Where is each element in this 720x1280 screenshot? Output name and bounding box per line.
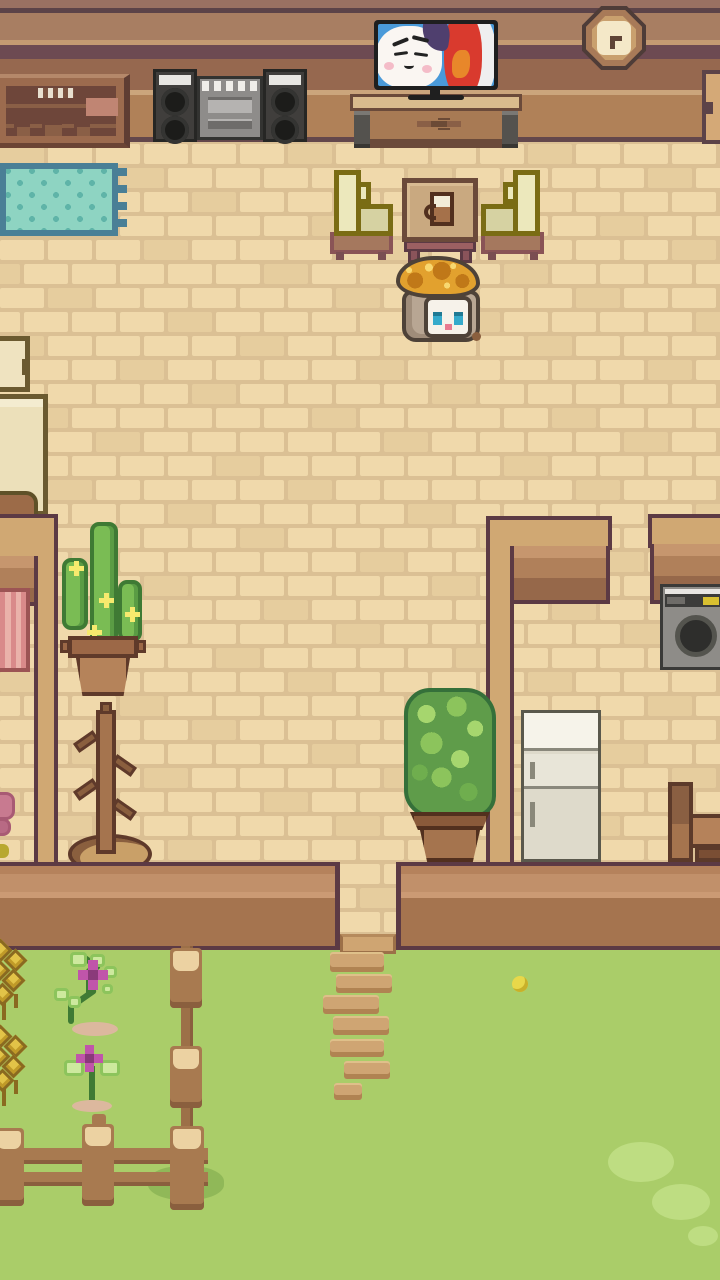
floor-brick <box>288 576 332 596</box>
floor-brick <box>336 336 380 356</box>
floor-brick <box>0 240 44 260</box>
floor-brick <box>72 360 116 380</box>
floor-brick <box>360 648 404 668</box>
floor-brick <box>192 336 236 356</box>
floor-brick <box>624 144 668 164</box>
vine-leaf <box>104 966 117 978</box>
floor-brick <box>192 816 236 836</box>
floor-brick <box>672 144 716 164</box>
floor-brick <box>216 504 260 524</box>
cat-eye <box>433 312 442 325</box>
floor-brick <box>600 648 644 668</box>
floor-brick <box>192 432 236 452</box>
plant-pot-rim <box>410 812 490 830</box>
floor-brick <box>168 408 212 428</box>
floor-brick <box>336 624 380 644</box>
floor-brick <box>336 912 380 932</box>
floor-brick <box>672 720 716 740</box>
tv-stand-leg <box>502 111 518 148</box>
floor-brick <box>504 360 548 380</box>
cat-nose <box>445 324 452 330</box>
floor-brick <box>672 672 716 692</box>
cactus-bloom <box>130 612 135 617</box>
floor-brick <box>384 432 428 452</box>
speaker-cone-icon <box>271 116 299 144</box>
chair-foot <box>336 252 344 260</box>
masonry-stove[interactable] <box>0 336 52 520</box>
magenta-bloom <box>85 1054 94 1063</box>
floor-brick <box>216 216 260 236</box>
floor-brick <box>216 312 260 332</box>
mug <box>430 192 454 226</box>
floor-brick <box>576 240 620 260</box>
dirt-patch <box>72 1022 118 1036</box>
vine-flower <box>46 950 130 1042</box>
floor-brick <box>648 456 692 476</box>
floor-brick <box>216 840 260 860</box>
floor-brick <box>696 456 720 476</box>
floor-brick <box>216 792 260 812</box>
plant-leaves <box>404 688 496 818</box>
floor-brick <box>312 312 356 332</box>
floor-brick <box>336 768 380 788</box>
cassette-window <box>208 97 252 113</box>
freezer-door <box>524 754 598 789</box>
floor-brick <box>336 576 380 596</box>
dirt-patch <box>72 1100 112 1112</box>
floor-brick <box>240 672 284 692</box>
wall-clock[interactable] <box>582 6 646 70</box>
floor-brick <box>648 696 692 716</box>
divider-wall-mid-top <box>486 516 612 550</box>
floor-brick <box>624 288 668 308</box>
floor-brick <box>384 384 428 404</box>
floor-brick <box>600 792 644 812</box>
floor-brick <box>168 648 212 668</box>
floor-brick <box>336 864 380 884</box>
floor-brick <box>576 192 620 212</box>
floor-brick <box>336 288 380 308</box>
speaker-right <box>263 69 307 142</box>
floor-brick <box>408 648 452 668</box>
floor-brick <box>96 240 140 260</box>
speaker-trim <box>269 75 301 85</box>
coat-rack-knob <box>100 702 112 714</box>
flower-leaf <box>64 1060 84 1076</box>
grass-light-patch <box>652 1184 710 1220</box>
refrigerator[interactable] <box>521 710 601 862</box>
clock-hand <box>610 36 622 41</box>
floor-brick <box>528 480 572 500</box>
small-flower <box>64 1050 124 1116</box>
potted-cactus[interactable] <box>56 518 148 700</box>
floor-brick <box>72 456 116 476</box>
floor-brick <box>648 264 692 284</box>
floor-brick <box>192 384 236 404</box>
magenta-bloom <box>88 970 98 980</box>
floor-brick <box>432 384 476 404</box>
floor-brick <box>360 408 404 428</box>
floor-brick <box>432 432 476 452</box>
floor-brick <box>696 360 720 380</box>
floor-brick <box>240 432 284 452</box>
divider-wall-mid-face <box>508 546 610 604</box>
floor-brick <box>264 360 308 380</box>
floor-brick <box>600 696 644 716</box>
floor-brick <box>288 624 332 644</box>
vine-leaf <box>54 988 69 1001</box>
floor-brick <box>168 696 212 716</box>
floor-brick <box>576 672 620 692</box>
floor-brick <box>48 336 92 356</box>
floor-brick <box>408 456 452 476</box>
floor-brick <box>624 432 668 452</box>
floor-brick <box>360 600 404 620</box>
floor-brick <box>360 360 404 380</box>
fence-horizontal <box>0 1116 210 1202</box>
floor-brick <box>456 408 500 428</box>
floor-brick <box>624 336 668 356</box>
tv-stand[interactable] <box>350 94 522 152</box>
coat-rack[interactable] <box>58 706 154 876</box>
floor-brick <box>240 192 284 212</box>
floor-brick <box>648 744 692 764</box>
deck-buttons <box>202 81 258 91</box>
floor-brick <box>624 384 668 404</box>
floor-brick <box>408 408 452 428</box>
cactus-bloom <box>92 630 97 635</box>
speaker-cone-icon <box>161 88 189 116</box>
floor-brick <box>168 360 212 380</box>
floor-brick <box>528 384 572 404</box>
floor-brick <box>288 288 332 308</box>
washing-machine[interactable] <box>660 584 720 670</box>
wooden-chair[interactable] <box>662 782 720 862</box>
floor-brick <box>624 192 668 212</box>
floor-brick <box>48 480 92 500</box>
floor-brick <box>168 264 212 284</box>
floor-brick <box>312 504 356 524</box>
floor-brick <box>0 744 20 764</box>
grass-light-patch <box>608 1142 674 1182</box>
tv-stand-drawer <box>364 111 508 142</box>
side-table[interactable] <box>402 178 478 266</box>
floor-brick <box>384 480 428 500</box>
fence-post-cap <box>85 1127 111 1146</box>
floor-brick <box>384 576 428 596</box>
right-edge-cabinet[interactable] <box>702 70 720 144</box>
floor-brick <box>432 480 476 500</box>
floor-brick <box>600 264 644 284</box>
plant-pot <box>420 830 480 862</box>
floor-brick <box>480 288 524 308</box>
floor-brick <box>552 312 596 332</box>
floor-brick <box>216 168 260 188</box>
floor-brick <box>240 528 284 548</box>
floor-brick <box>432 624 476 644</box>
floor-brick <box>240 240 284 260</box>
floor-brick <box>192 288 236 308</box>
floor-brick <box>288 384 332 404</box>
floor-brick <box>408 360 452 380</box>
cat-face <box>424 296 472 338</box>
floor-brick <box>168 504 212 524</box>
floor-brick <box>216 648 260 668</box>
floor-brick <box>504 408 548 428</box>
pot-rim <box>68 636 138 658</box>
floor-brick <box>696 408 720 428</box>
stove-body <box>0 394 48 516</box>
floor-brick <box>168 744 212 764</box>
floor-brick <box>600 840 644 860</box>
floor-brick <box>48 288 92 308</box>
floor-brick <box>120 456 164 476</box>
floor-brick <box>192 480 236 500</box>
wheat-stem <box>14 1080 18 1094</box>
floor-brick <box>360 696 404 716</box>
fence-post-cap <box>0 1131 21 1149</box>
floor-brick <box>672 288 716 308</box>
fence-post-cap <box>173 951 199 971</box>
floor-brick <box>576 384 620 404</box>
floor-brick <box>336 720 380 740</box>
floor-brick <box>672 240 716 260</box>
game-viewport <box>0 0 720 1280</box>
grass-light-patch <box>688 1226 718 1246</box>
floor-brick <box>216 264 260 284</box>
cactus-stalk <box>90 522 118 644</box>
pink-flower-petal <box>0 818 11 836</box>
floor-brick <box>240 288 284 308</box>
cabinet-drawer <box>74 124 90 136</box>
floor-brick <box>168 600 212 620</box>
floor-brick <box>264 792 308 812</box>
floor-brick <box>72 264 116 284</box>
floor-brick <box>192 144 236 164</box>
chair-foot <box>530 252 538 260</box>
floor-brick <box>624 240 668 260</box>
floor-brick <box>192 240 236 260</box>
floor-brick <box>264 168 308 188</box>
front-wall-left <box>0 862 340 950</box>
floor-brick <box>336 432 380 452</box>
floor-brick <box>48 384 92 404</box>
floor-brick <box>552 168 596 188</box>
floor-brick <box>696 264 720 284</box>
floor-brick <box>600 312 644 332</box>
floor-brick <box>0 288 44 308</box>
speaker-cone-icon <box>161 116 189 144</box>
stove-chimney <box>0 336 30 392</box>
floor-brick <box>600 216 644 236</box>
floor-brick <box>144 144 188 164</box>
floor-brick <box>120 264 164 284</box>
floor-brick <box>576 624 620 644</box>
floor-brick <box>288 432 332 452</box>
screen-flame <box>452 50 470 78</box>
floor-brick <box>504 264 548 284</box>
armchair-left[interactable] <box>328 170 396 262</box>
floor-brick <box>504 456 548 476</box>
cabinet-trinkets <box>38 88 74 98</box>
floor-brick <box>288 480 332 500</box>
floor-brick <box>288 528 332 548</box>
floor-brick <box>288 192 332 212</box>
floor-brick <box>264 312 308 332</box>
yellow-bloom <box>512 976 528 992</box>
player-cat[interactable] <box>396 256 486 348</box>
floor-brick <box>384 528 428 548</box>
floor-brick <box>360 456 404 476</box>
floor-brick <box>192 528 236 548</box>
floor-brick <box>360 840 404 860</box>
floor-brick <box>144 432 188 452</box>
cabinet-pink-panel <box>86 98 118 116</box>
drawer-handle-icon <box>431 121 447 127</box>
stereo-system[interactable] <box>153 66 307 142</box>
mug-handle <box>424 204 436 220</box>
tv-screen <box>378 24 494 86</box>
floor-brick <box>216 456 260 476</box>
floor-brick <box>144 384 188 404</box>
floor-brick <box>528 672 572 692</box>
floor-brick <box>672 432 716 452</box>
floor-brick <box>528 288 572 308</box>
vine-leaf <box>90 954 105 967</box>
fence-post-cap <box>173 1049 199 1069</box>
pink-cushion[interactable] <box>0 588 30 672</box>
floor-brick <box>504 312 548 332</box>
washer-door <box>675 615 717 657</box>
cassette-deck <box>197 76 263 140</box>
floor-brick <box>600 168 644 188</box>
floor-brick <box>264 648 308 668</box>
floor-brick <box>144 528 188 548</box>
floor-brick <box>672 192 716 212</box>
cactus-arm <box>118 580 142 642</box>
floor-brick <box>360 552 404 572</box>
floor-brick <box>552 264 596 284</box>
cactus-bloom <box>104 598 109 603</box>
wall-cabinet[interactable] <box>0 74 130 148</box>
floor-brick <box>576 288 620 308</box>
floor-brick <box>360 504 404 524</box>
armchair-right[interactable] <box>478 170 546 262</box>
floor-brick <box>360 744 404 764</box>
speaker-cone-icon <box>271 88 299 116</box>
floor-brick <box>312 840 356 860</box>
fence-post-cap <box>173 1129 201 1149</box>
tv-stand-shadow <box>356 142 516 148</box>
front-wall-right <box>396 862 720 950</box>
floor-brick <box>72 408 116 428</box>
chair-seat <box>356 204 393 236</box>
houseplant[interactable] <box>402 688 498 862</box>
flower-leaf <box>100 1060 120 1076</box>
floor-brick <box>120 360 164 380</box>
floor-brick <box>456 360 500 380</box>
floor-brick <box>288 720 332 740</box>
floor-brick <box>360 792 404 812</box>
floor-brick <box>312 600 356 620</box>
chair-foot <box>378 252 386 260</box>
pot-body <box>76 658 130 696</box>
divider-wall-right-top <box>648 514 720 548</box>
vine-leaf <box>102 984 113 994</box>
floor-brick <box>192 768 236 788</box>
floor-brick <box>48 240 92 260</box>
floor-brick <box>312 792 356 812</box>
floor-brick <box>600 408 644 428</box>
floor-brick <box>336 528 380 548</box>
chair-back <box>668 782 693 862</box>
golden-wig <box>396 256 480 298</box>
floor-brick <box>528 624 572 644</box>
floor-brick <box>480 480 524 500</box>
floor-brick <box>552 408 596 428</box>
floor-brick <box>264 408 308 428</box>
floor-brick <box>240 624 284 644</box>
floor-brick <box>648 360 692 380</box>
cat-eye <box>454 312 463 325</box>
teal-rug[interactable] <box>0 163 118 236</box>
floor-brick <box>240 384 284 404</box>
rug-fringe <box>118 168 127 230</box>
floor-brick <box>168 552 212 572</box>
floor-brick <box>336 816 380 836</box>
floor-brick <box>624 480 668 500</box>
floor-brick <box>240 336 284 356</box>
fridge-handle <box>530 762 535 779</box>
vine-leaf <box>68 996 81 1008</box>
floor-brick <box>696 216 720 236</box>
floor-brick <box>456 456 500 476</box>
floor-brick <box>432 528 476 548</box>
floor-brick <box>384 624 428 644</box>
floor-brick <box>480 432 524 452</box>
floor-brick <box>264 216 308 236</box>
cabinet-notch <box>706 102 713 114</box>
floor-brick <box>264 456 308 476</box>
floor-brick <box>144 192 188 212</box>
fridge-top <box>524 713 598 751</box>
floor-brick <box>192 672 236 692</box>
fence-vertical <box>170 946 204 1142</box>
floor-brick <box>24 264 68 284</box>
floor-brick <box>264 840 308 860</box>
floor-brick <box>264 744 308 764</box>
floor-brick <box>648 216 692 236</box>
floor-brick <box>144 288 188 308</box>
floor-brick <box>312 456 356 476</box>
floor-brick <box>240 144 284 164</box>
divider-wall-left-top <box>0 514 58 560</box>
floor-brick <box>576 336 620 356</box>
floor-brick <box>288 240 332 260</box>
television[interactable] <box>374 20 498 100</box>
wheat-stem <box>2 1002 6 1020</box>
floor-brick <box>336 672 380 692</box>
vine-leaf <box>70 952 87 967</box>
floor-brick <box>216 600 260 620</box>
floor-brick <box>216 408 260 428</box>
floor-brick <box>648 408 692 428</box>
cartoon-blush <box>422 65 432 73</box>
floor-brick <box>96 432 140 452</box>
floor-brick <box>696 168 720 188</box>
floor-brick <box>168 456 212 476</box>
floor-brick <box>168 792 212 812</box>
